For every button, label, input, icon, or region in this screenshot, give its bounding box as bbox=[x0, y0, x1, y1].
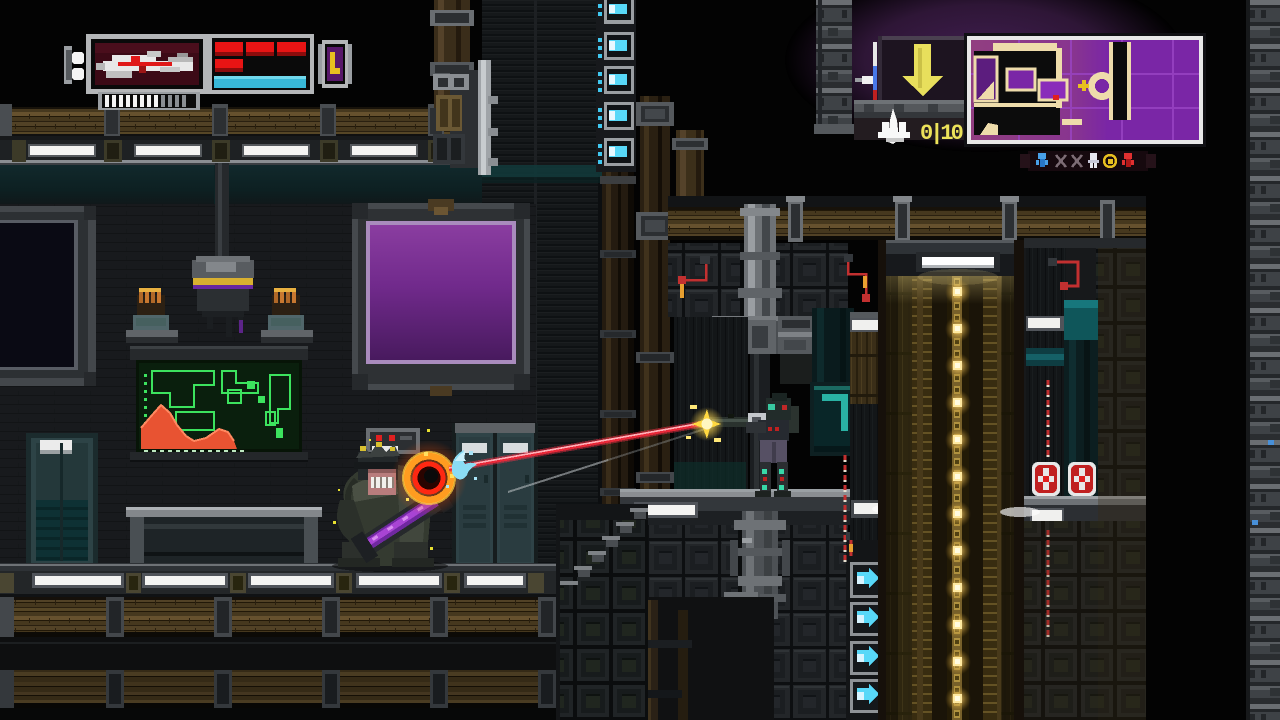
svg-text:0|10: 0|10 bbox=[920, 121, 963, 146]
